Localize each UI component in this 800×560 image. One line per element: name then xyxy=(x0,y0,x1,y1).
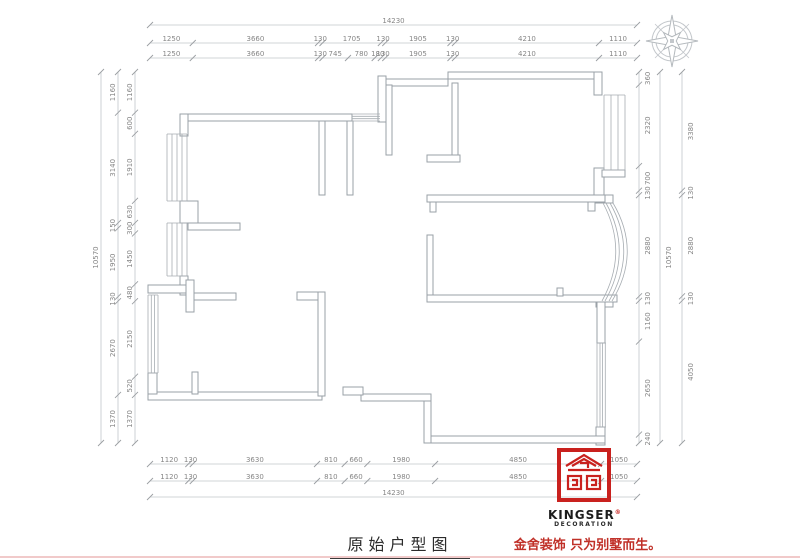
walls xyxy=(148,72,625,445)
kingser-logo-icon xyxy=(556,448,612,502)
dim-label: 630 xyxy=(126,205,134,218)
kingser-logo: KINGSER® DECORATION xyxy=(548,448,620,528)
dim-label: 150 xyxy=(109,219,117,232)
dim-label: 700 xyxy=(644,172,652,185)
dim-label: 10570 xyxy=(665,246,673,268)
dim-label: 1160 xyxy=(126,83,134,101)
dim-label: 1120 xyxy=(160,456,178,464)
dim-label: 810 xyxy=(324,456,337,464)
dim-label: 2150 xyxy=(126,330,134,348)
dim-label: 130 xyxy=(314,35,327,43)
dim-label: 130 xyxy=(644,186,652,199)
dim-label: 130 xyxy=(446,50,459,58)
dim-label: 3660 xyxy=(246,35,264,43)
dim-label: 2880 xyxy=(687,237,695,255)
dim-label: 1450 xyxy=(126,250,134,268)
dim-label: 660 xyxy=(349,456,362,464)
dim-label: 1950 xyxy=(109,253,117,271)
dim-label: 130 xyxy=(687,186,695,199)
dim-label: 2670 xyxy=(109,339,117,357)
dim-label: 1905 xyxy=(409,50,427,58)
dim-label: 300 xyxy=(126,222,134,235)
dim-label: 130 xyxy=(644,292,652,305)
dim-label: 3140 xyxy=(109,159,117,177)
dim-label: 1905 xyxy=(409,35,427,43)
dim-label: 10570 xyxy=(92,246,100,268)
dim-label: 2880 xyxy=(644,237,652,255)
dim-label: 1160 xyxy=(644,312,652,330)
dim-label: 4850 xyxy=(509,456,527,464)
dim-label: 1110 xyxy=(609,35,627,43)
dim-label: 130 xyxy=(687,292,695,305)
dim-label: 1120 xyxy=(160,473,178,481)
dim-label: 1160 xyxy=(109,83,117,101)
dim-label: 1250 xyxy=(162,35,180,43)
dim-label: 3630 xyxy=(246,456,264,464)
dim-label: 480 xyxy=(126,286,134,299)
dim-label: 130 xyxy=(446,35,459,43)
dim-label: 780 xyxy=(355,50,368,58)
dim-label: 14230 xyxy=(382,17,404,25)
dim-label: 3380 xyxy=(687,122,695,140)
logo-wordmark: KINGSER® xyxy=(548,507,620,521)
dim-label: 1370 xyxy=(126,410,134,428)
dim-label: 130 xyxy=(109,292,117,305)
dim-label: 4850 xyxy=(509,473,527,481)
dim-label: 2320 xyxy=(644,116,652,134)
dim-label: 3660 xyxy=(246,50,264,58)
logo-subtitle: DECORATION xyxy=(548,521,620,528)
dim-label: 810 xyxy=(324,473,337,481)
dim-label: 4050 xyxy=(687,363,695,381)
dim-label: 130 xyxy=(184,456,197,464)
dim-label: 1370 xyxy=(109,410,117,428)
dim-label: 1910 xyxy=(126,158,134,176)
dim-label: 14230 xyxy=(382,489,404,497)
dim-label: 4210 xyxy=(518,35,536,43)
dim-label: 3630 xyxy=(246,473,264,481)
dim-label: 1705 xyxy=(343,35,361,43)
dim-label: 1980 xyxy=(392,456,410,464)
page-title: 原始户型图 xyxy=(330,531,470,559)
dim-label: 660 xyxy=(349,473,362,481)
dim-label: 240 xyxy=(644,432,652,445)
dim-label: 520 xyxy=(126,379,134,392)
dim-label: 745 xyxy=(329,50,342,58)
registered-mark: ® xyxy=(615,509,622,516)
dim-label: 130 xyxy=(184,473,197,481)
dim-label: 130 xyxy=(376,50,389,58)
dim-label: 600 xyxy=(126,117,134,130)
dim-label: 1980 xyxy=(392,473,410,481)
dim-label: 2650 xyxy=(644,379,652,397)
dim-label: 360 xyxy=(644,72,652,85)
floor-plan-sheet: 1423012503660130170513019051304210111012… xyxy=(0,0,800,560)
sheet-edge-line xyxy=(0,556,800,558)
dim-label: 1250 xyxy=(162,50,180,58)
compass-icon xyxy=(646,15,698,67)
dim-label: 130 xyxy=(376,35,389,43)
dim-label: 4210 xyxy=(518,50,536,58)
brand-slogan: 金舍装饰 只为别墅而生。 xyxy=(495,534,680,553)
dim-label: 1110 xyxy=(609,50,627,58)
floor-plan-drawing: 1423012503660130170513019051304210111012… xyxy=(0,0,800,560)
dim-label: 130 xyxy=(314,50,327,58)
